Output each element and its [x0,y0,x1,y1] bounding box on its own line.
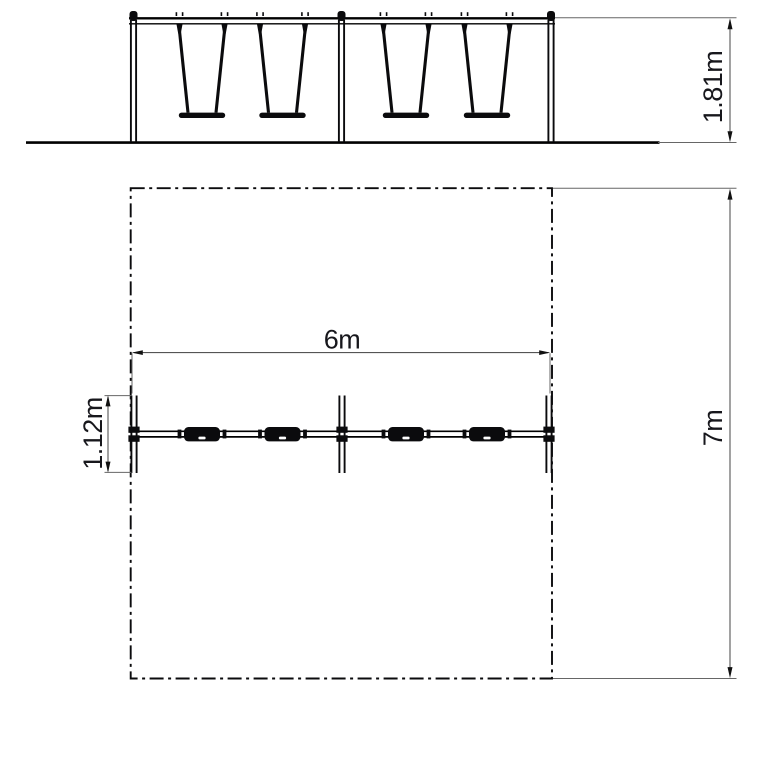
beam-hub [336,435,347,442]
chain-mount-plan [303,430,307,439]
swing-chain [420,31,429,113]
post-cap [547,11,555,21]
frame-depth-dimension-label: 1.12m [78,397,108,470]
swing-chain [465,31,474,113]
swing-chain [180,31,189,113]
chain-mount-plan [258,430,262,439]
safety-depth-dimension: 7m [698,189,733,678]
arrow-down-icon [728,667,733,678]
swing-chain [216,31,225,113]
seat-highlight [483,437,490,440]
chain-mount-plan [382,430,386,439]
height-dimension: 1.81m [698,18,733,142]
swing-set-technical-drawing: 1.81m 6m 1.12m [0,0,782,768]
seat-highlight [198,437,205,440]
width-dimension: 6m [132,325,550,394]
post-cap [130,11,138,21]
beam-hub [128,435,139,442]
beam-hub [336,427,347,433]
beam-hub [128,427,139,433]
beam-hub [543,427,554,433]
drawing-canvas: 1.81m 6m 1.12m [0,0,782,768]
arrow-up-icon [728,18,733,29]
chain-mount-plan [508,430,512,439]
seat-highlight [402,437,409,440]
frame-posts [130,11,556,142]
height-dimension-label: 1.81m [698,51,728,124]
swing-chain [501,31,510,113]
swing-chain [260,31,269,113]
chain-mount-plan [223,430,227,439]
swing-chain [384,31,393,113]
seat-highlight [279,437,286,440]
chain-mount-plan [427,430,431,439]
width-dimension-label: 6m [324,325,361,355]
post-cap [338,11,346,21]
frame-depth-dimension: 1.12m [78,395,132,472]
safety-depth-dimension-label: 7m [698,410,728,447]
front-elevation-view: 1.81m [26,11,737,143]
arrow-up-icon [728,189,733,200]
beam-hub [543,435,554,442]
arrow-left-icon [132,350,143,355]
chain-mount-plan [178,430,182,439]
arrow-right-icon [539,350,550,355]
arrow-down-icon [728,131,733,142]
plan-view: 6m 1.12m 7m [78,188,737,678]
chain-mount-plan [463,430,467,439]
swing-chain [297,31,306,113]
